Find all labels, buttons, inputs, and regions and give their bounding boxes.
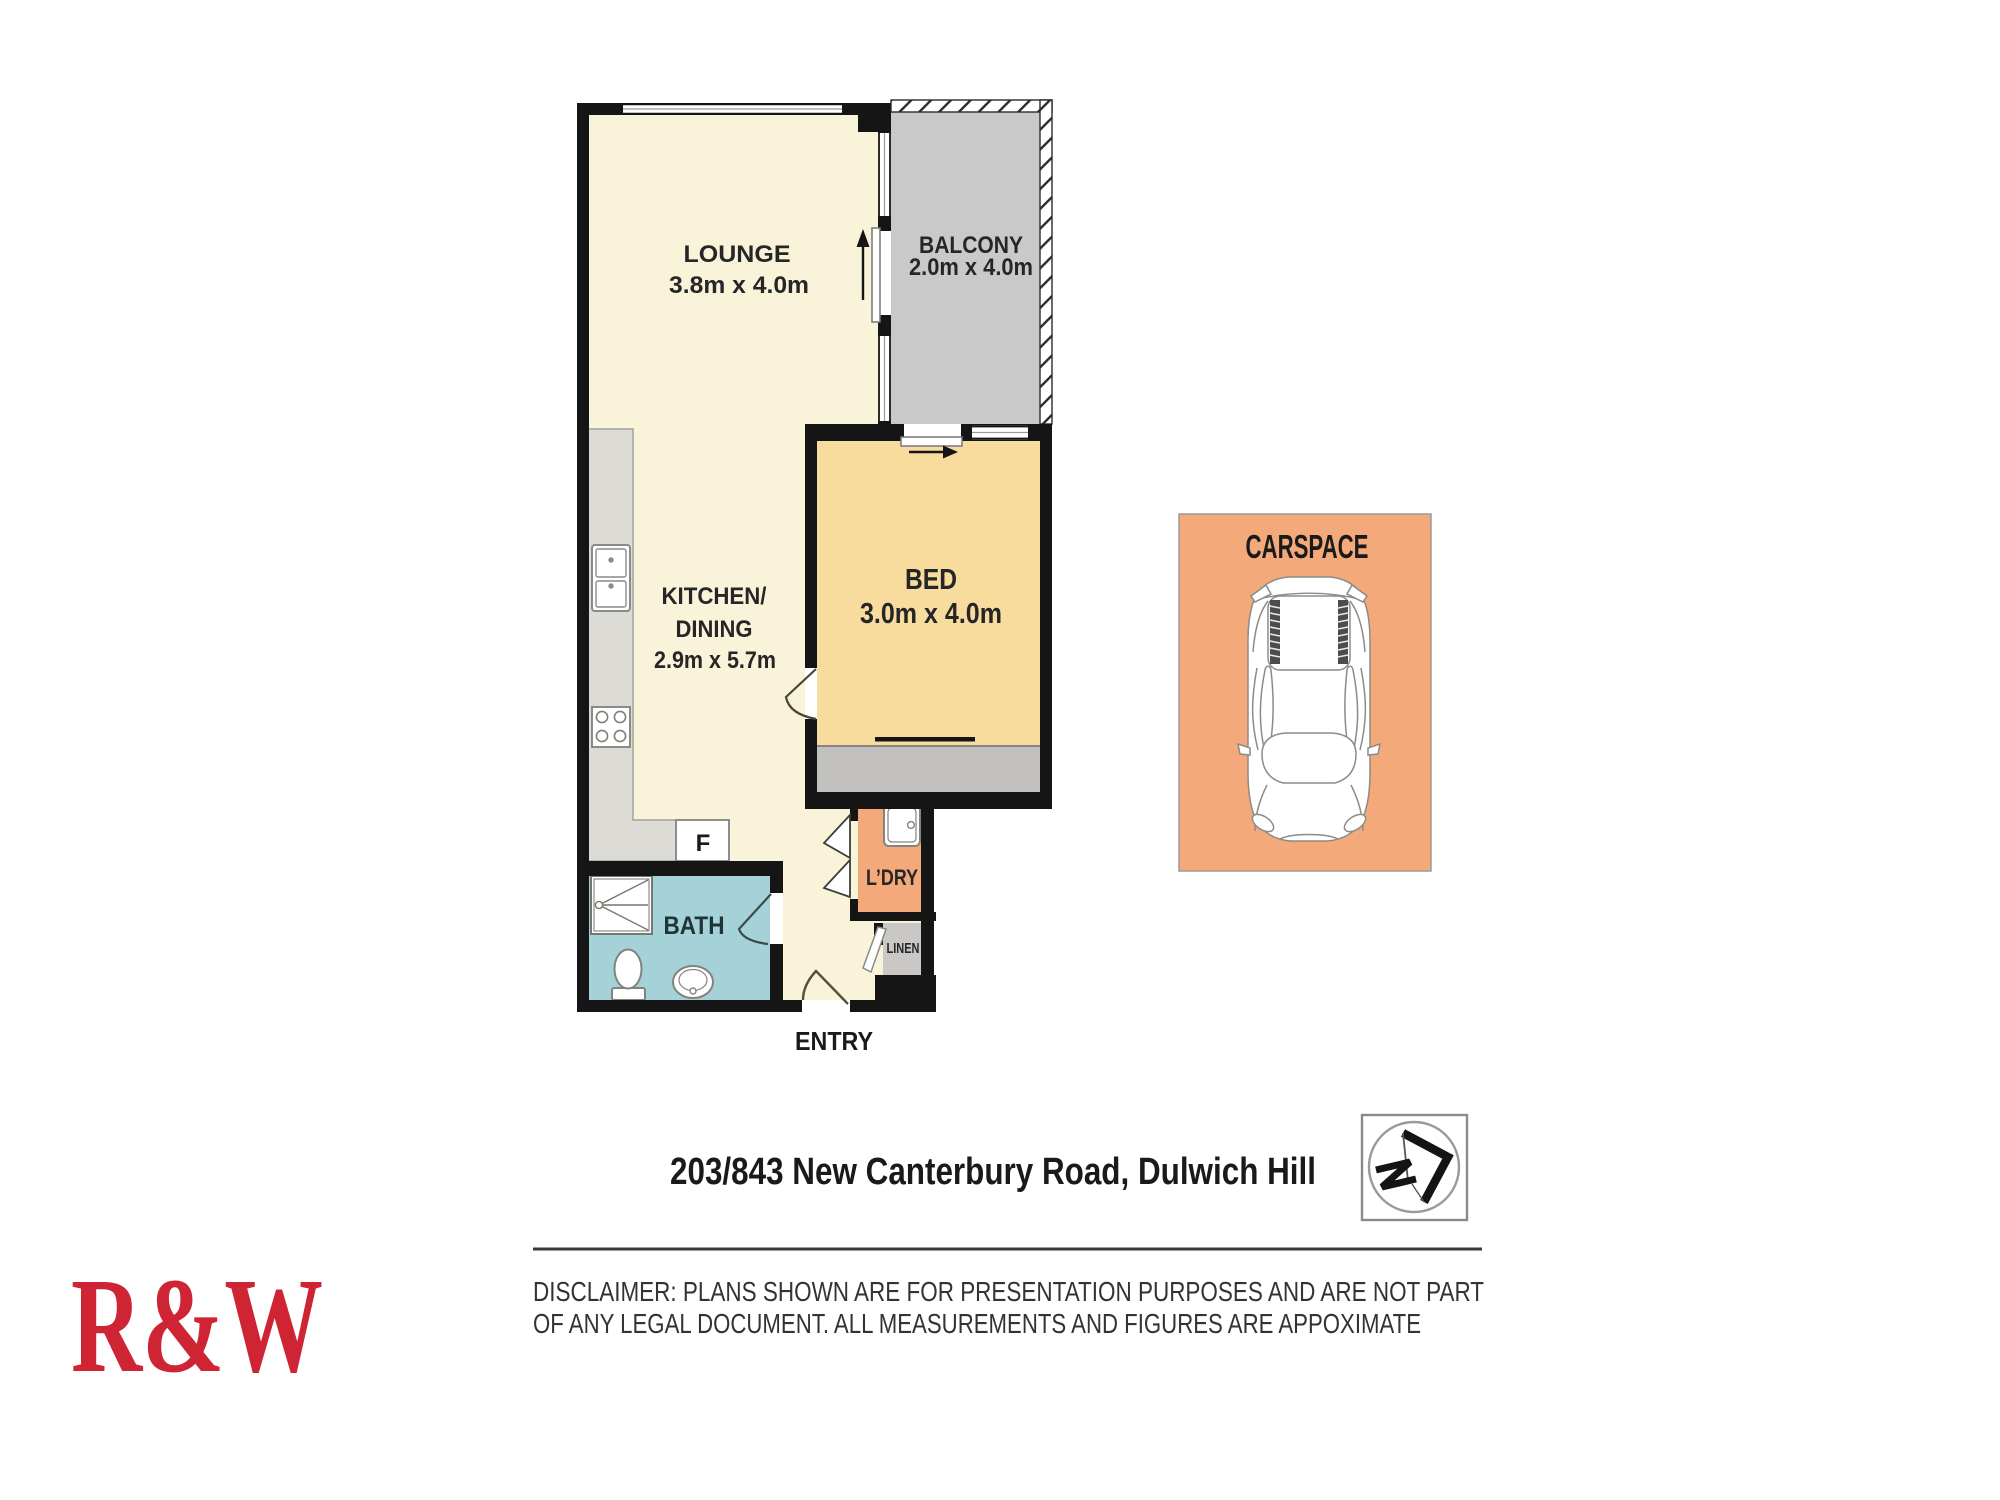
svg-text:203/843 New Canterbury Road, D: 203/843 New Canterbury Road, Dulwich Hil… bbox=[670, 1151, 1316, 1193]
svg-text:CARSPACE: CARSPACE bbox=[1246, 528, 1369, 565]
svg-text:DISCLAIMER: PLANS SHOWN ARE FO: DISCLAIMER: PLANS SHOWN ARE FOR PRESENTA… bbox=[533, 1276, 1484, 1307]
svg-text:3.8m x 4.0m: 3.8m x 4.0m bbox=[669, 272, 809, 299]
svg-text:DINING: DINING bbox=[676, 616, 753, 643]
svg-text:2.0m x 4.0m: 2.0m x 4.0m bbox=[909, 254, 1033, 281]
svg-text:2.9m x 5.7m: 2.9m x 5.7m bbox=[654, 647, 776, 674]
svg-text:OF ANY LEGAL DOCUMENT. ALL MEA: OF ANY LEGAL DOCUMENT. ALL MEASUREMENTS … bbox=[533, 1308, 1421, 1339]
svg-text:ENTRY: ENTRY bbox=[795, 1026, 873, 1056]
svg-text:BED: BED bbox=[905, 564, 957, 596]
svg-text:KITCHEN/: KITCHEN/ bbox=[662, 583, 767, 610]
svg-text:BATH: BATH bbox=[664, 912, 725, 940]
svg-text:L’DRY: L’DRY bbox=[866, 865, 918, 890]
svg-text:LOUNGE: LOUNGE bbox=[684, 241, 791, 268]
svg-text:3.0m x 4.0m: 3.0m x 4.0m bbox=[860, 598, 1002, 630]
svg-text:LINEN: LINEN bbox=[887, 940, 920, 957]
svg-text:R&W: R&W bbox=[71, 1251, 323, 1401]
svg-text:F: F bbox=[696, 830, 711, 857]
